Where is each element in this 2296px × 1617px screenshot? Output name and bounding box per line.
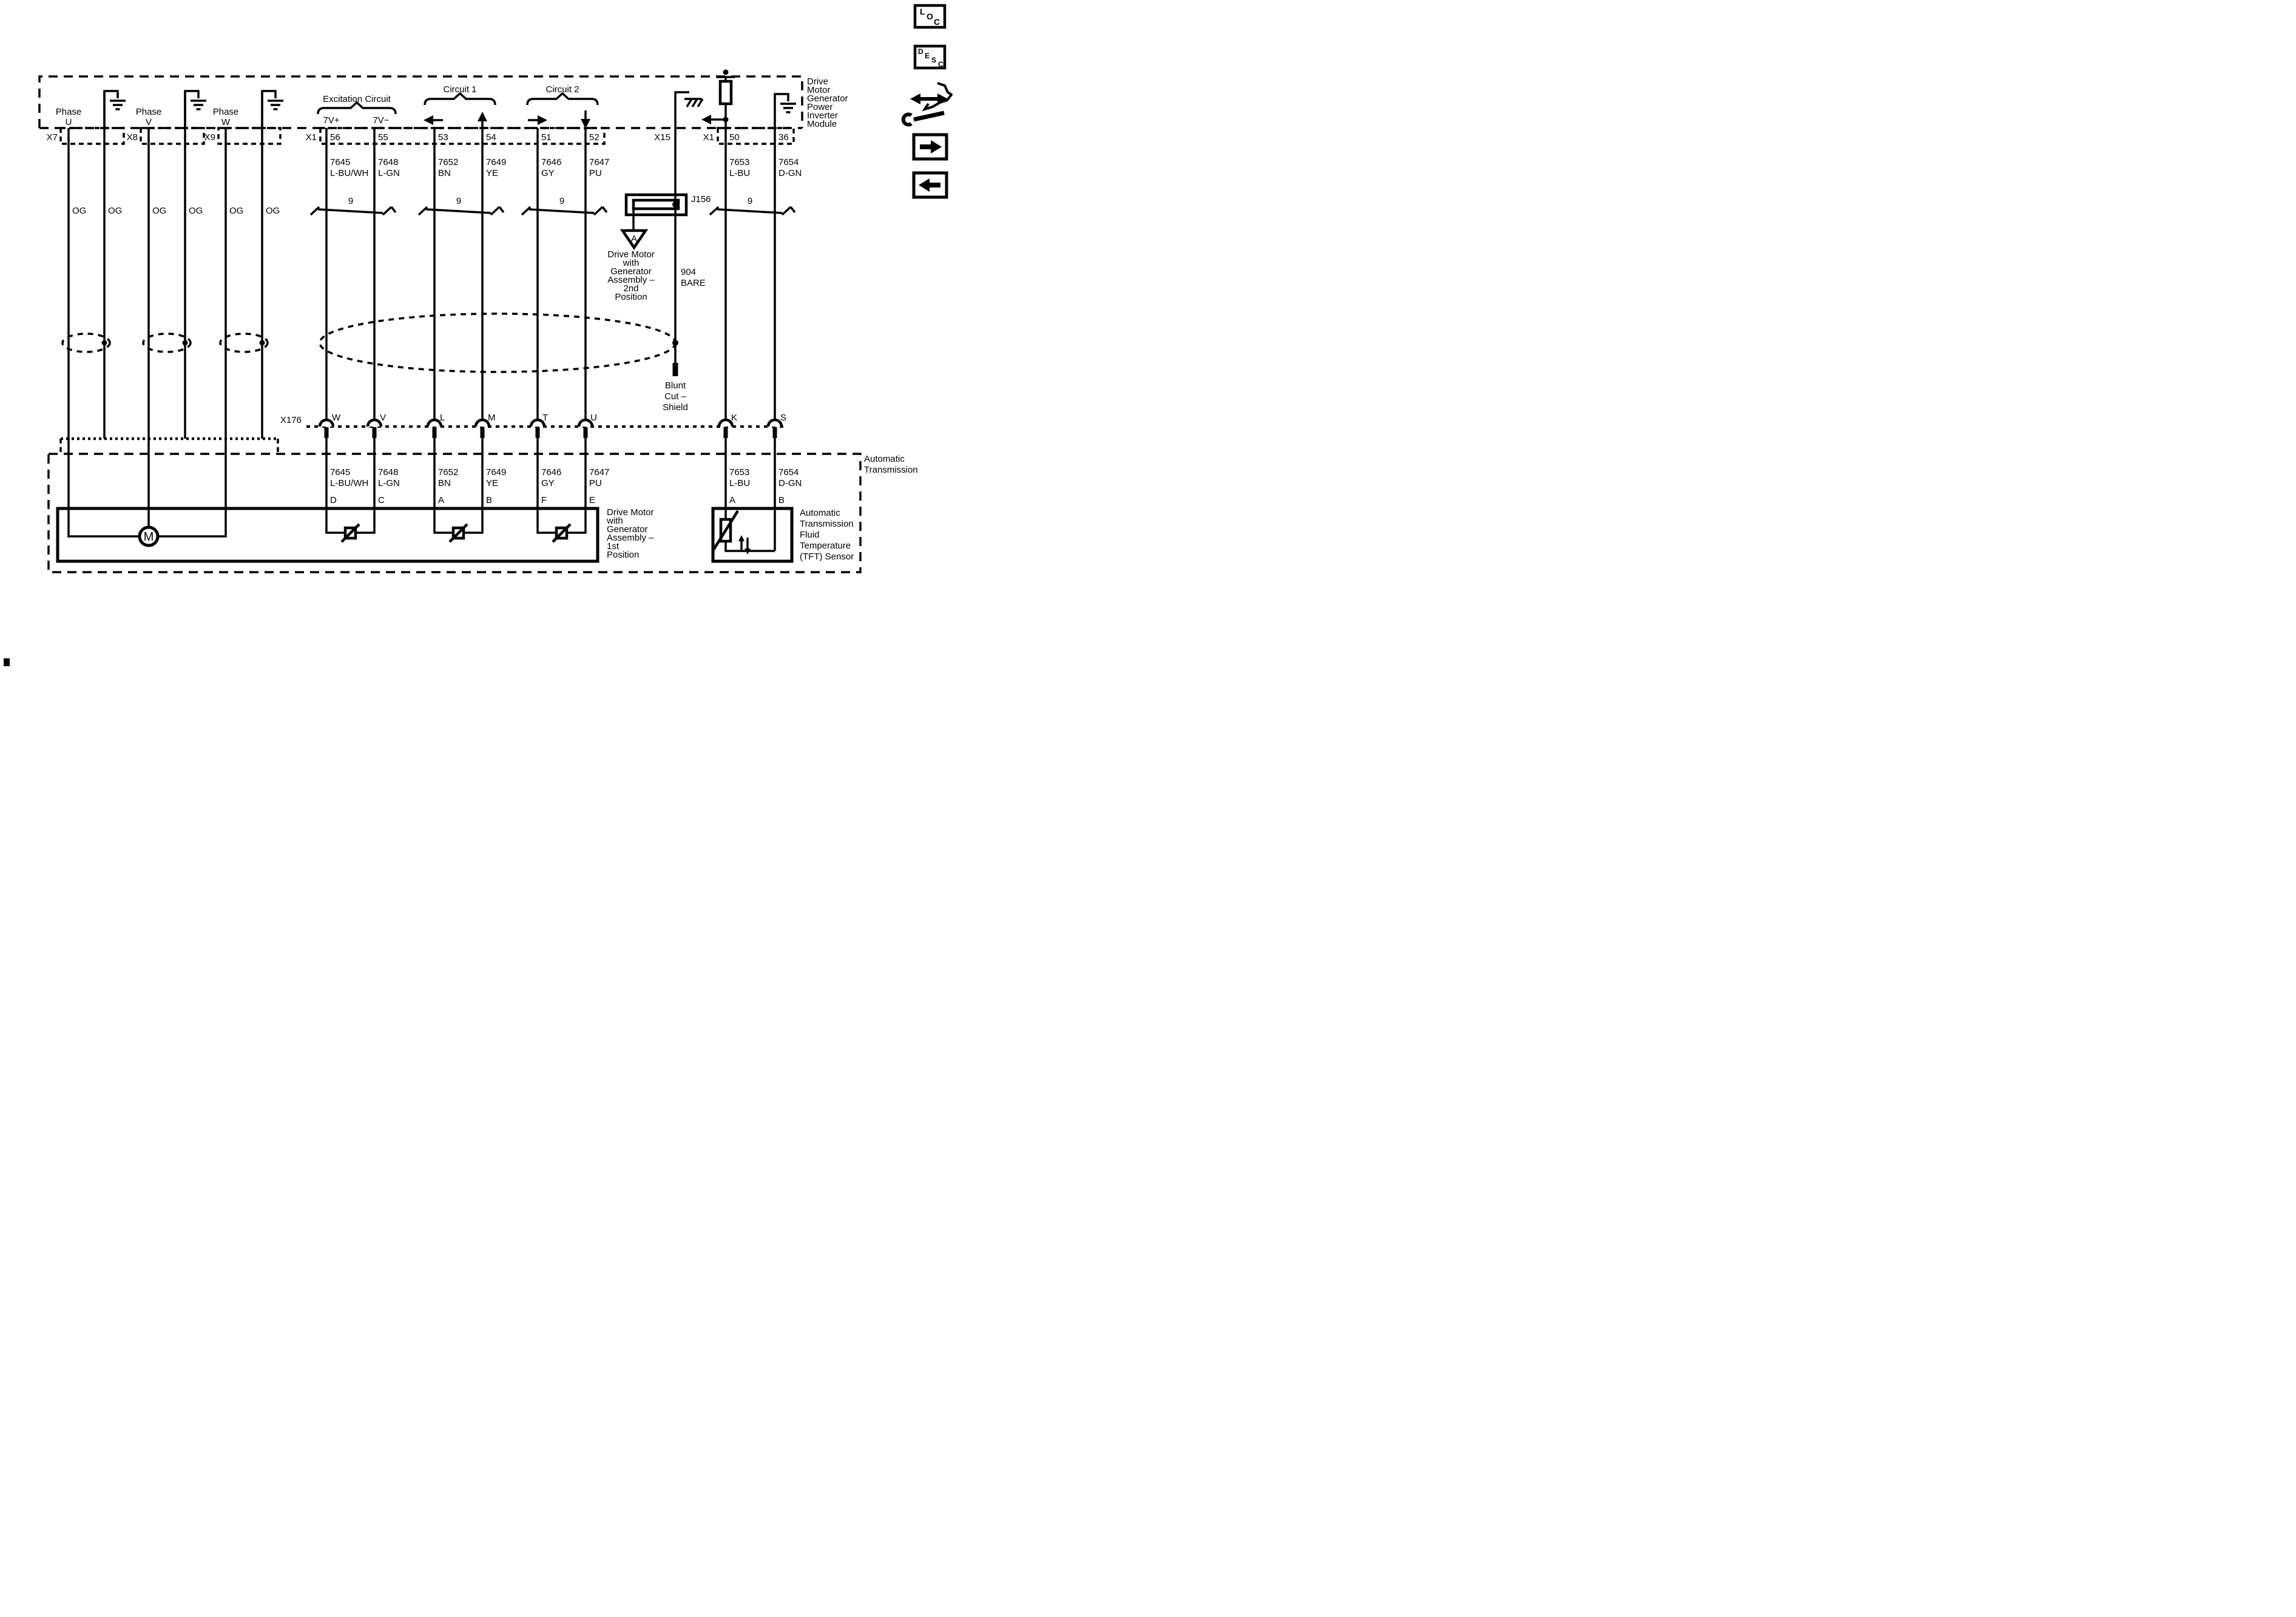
shield-junction-dot xyxy=(260,340,265,346)
transmission-label-line: Automatic xyxy=(864,454,905,464)
wire-circuit: 7649 xyxy=(486,467,506,478)
ground-icon xyxy=(104,91,126,128)
desc-button[interactable]: D E S C xyxy=(915,46,945,69)
loc-letter: L xyxy=(920,7,925,16)
shield-junction-dot xyxy=(102,340,107,346)
page-corner-mark xyxy=(4,658,10,666)
label-line: Shield xyxy=(663,402,688,413)
harness-count-marks: 9 9 9 9 xyxy=(311,196,795,215)
tft-internal-wire xyxy=(726,541,775,551)
connector-pin-stubs xyxy=(326,427,775,438)
phase-x176-connector xyxy=(61,439,278,454)
label-line: Blunt xyxy=(665,380,686,391)
wire-circuit: 7652 xyxy=(438,157,458,167)
label-line: Position xyxy=(615,292,647,302)
drive-motor-1st-box: M Drive Motor with Generator Assembly – … xyxy=(58,507,654,561)
pin-function-label: 7V− xyxy=(373,115,389,126)
wire-color: YE xyxy=(486,168,498,178)
pin-number: 51 xyxy=(541,132,552,143)
module-label-line: Module xyxy=(807,119,837,129)
wire-color: GY xyxy=(541,478,555,488)
connector-x1-label: X1 xyxy=(306,132,317,143)
connector-x1-label: X1 xyxy=(703,132,714,143)
connector-x8-box xyxy=(141,128,204,144)
drive-motor-1st-label: Drive Motor with Generator Assembly – 1s… xyxy=(606,507,654,560)
wire-color: L-GN xyxy=(378,478,400,488)
phase-letter: U xyxy=(66,117,72,127)
wire-color: BN xyxy=(438,478,451,488)
winding-symbol xyxy=(450,524,467,542)
wire-circuit: 7654 xyxy=(778,157,799,167)
brace xyxy=(527,93,598,105)
brace xyxy=(425,93,495,105)
harness-count: 9 xyxy=(348,196,353,206)
connector-x15-label: X15 xyxy=(654,132,670,143)
wire-color: L-BU/WH xyxy=(330,168,368,178)
wire-circuit: 7652 xyxy=(438,467,458,478)
x176-pin-letter: W xyxy=(332,413,341,423)
wire-7649 xyxy=(464,438,482,533)
loc-letter: O xyxy=(927,12,933,21)
terminal-letter: A xyxy=(438,495,444,505)
x176-pin-letter: V xyxy=(380,413,386,423)
desc-letter: D xyxy=(918,47,923,56)
pin-number: 55 xyxy=(378,132,388,143)
x176-pin-letter: K xyxy=(731,413,737,423)
connector-cavity-icon xyxy=(719,420,732,427)
phase-word: Phase xyxy=(136,107,162,117)
harness-count: 9 xyxy=(748,196,752,206)
next-button[interactable] xyxy=(914,135,947,159)
phase-letter: W xyxy=(221,117,231,127)
wire-color: D-GN xyxy=(778,478,802,488)
offpage-letter: A xyxy=(631,234,637,244)
connector-x1-top: X1 56 55 53 54 51 52 xyxy=(306,128,604,144)
wiring-diagram-page: Drive Motor Generator Power Inverter Mod… xyxy=(0,0,953,670)
shield-color: BARE xyxy=(681,278,706,288)
connector-x176: X176 W V L M T U K S xyxy=(280,413,786,438)
connector-x9-label: X9 xyxy=(204,132,215,143)
wire-color: GY xyxy=(541,168,555,178)
wrench-handle xyxy=(914,113,944,120)
transmission-label-line: Transmission xyxy=(864,465,918,475)
winding-symbol xyxy=(342,524,359,542)
wire-color: L-BU/WH xyxy=(330,478,368,488)
circuit1-section: Circuit 1 xyxy=(424,84,495,130)
connector-cavity-icon xyxy=(476,420,489,427)
wire-color: PU xyxy=(589,168,602,178)
signal-wires-top: 7645 L-BU/WH 7648 L-GN 7652 BN 7649 YE 7… xyxy=(326,128,802,420)
connector-cavity-icon xyxy=(768,420,782,427)
splice-label: J156 xyxy=(691,194,711,204)
wiring-diagram-canvas: Drive Motor Generator Power Inverter Mod… xyxy=(0,0,953,670)
phase-w-wire xyxy=(158,128,226,536)
phase-v-group: Phase V OG OG X8 xyxy=(127,91,206,527)
tft-sensor-box: Automatic Transmission Fluid Temperature… xyxy=(713,508,854,562)
wire-circuit: 7649 xyxy=(486,157,506,167)
connector-x176-label: X176 xyxy=(280,415,302,425)
shield-junction-dot xyxy=(183,340,188,346)
terminal-letter: B xyxy=(486,495,492,505)
offpage-connector-a: A xyxy=(623,231,646,248)
x176-pin-letter: S xyxy=(780,413,786,423)
wire-color: L-BU xyxy=(729,168,750,178)
connector-x1-right: X1 50 36 xyxy=(701,70,796,144)
wrench-icon xyxy=(903,115,911,125)
wire-circuit: 7646 xyxy=(541,157,561,167)
pin-number: 54 xyxy=(486,132,496,143)
shield-circuit-number: 904 xyxy=(681,267,696,277)
label-line: Fluid xyxy=(800,530,820,540)
splice-j156: J156 xyxy=(626,194,711,231)
desc-letter: S xyxy=(931,56,936,64)
connector-x7-label: X7 xyxy=(47,132,58,143)
label-line: (TFT) Sensor xyxy=(800,552,854,562)
motor-letter: M xyxy=(144,530,154,544)
wire-7647 xyxy=(567,438,586,533)
wire-circuit: 7653 xyxy=(729,157,749,167)
wire-color: L-GN xyxy=(378,168,400,178)
winding-symbol xyxy=(553,524,570,542)
wire-circuit: 7645 xyxy=(330,157,350,167)
wire-circuit: 7647 xyxy=(589,467,609,478)
wire-circuit: 7647 xyxy=(589,157,609,167)
pin-number: 53 xyxy=(438,132,448,143)
wire-color: BN xyxy=(438,168,451,178)
wire-color-label: OG xyxy=(108,206,122,216)
drive-motor-2nd-label: Drive Motor with Generator Assembly – 2n… xyxy=(607,249,655,302)
desc-letter: E xyxy=(925,52,930,60)
phase-word: Phase xyxy=(213,107,239,117)
terminal-letter: A xyxy=(729,495,735,505)
connector-x9-box xyxy=(218,128,280,144)
connector-cavity-icon xyxy=(428,420,441,427)
wire-circuit: 7648 xyxy=(378,157,398,167)
tft-label: Automatic Transmission Fluid Temperature… xyxy=(800,508,854,562)
ground-icon xyxy=(775,94,796,128)
terminal-letter: C xyxy=(378,495,385,505)
label-line: Cut – xyxy=(664,391,687,402)
x176-pin-letter: T xyxy=(542,413,548,423)
desc-letter: C xyxy=(938,60,944,69)
connector-x7-box xyxy=(61,128,124,144)
toolbar: L O C D E S C xyxy=(903,5,951,197)
blunt-cut-label: Blunt Cut – Shield xyxy=(663,380,688,413)
connector-cavity-icon xyxy=(368,420,381,427)
wire-color: L-BU xyxy=(729,478,750,488)
pin-function-label: 7V+ xyxy=(323,115,339,126)
wire-circuit: 7645 xyxy=(330,467,350,478)
phase-letter: V xyxy=(146,117,152,127)
wire-circuit: 7648 xyxy=(378,467,398,478)
phase-u-group: Phase U OG OG X7 xyxy=(47,91,140,536)
excitation-circuit-section: Excitation Circuit 7V+ 7V− xyxy=(318,94,396,126)
service-navigate-icon[interactable] xyxy=(903,83,951,125)
pin-number: 56 xyxy=(330,132,340,143)
wire-color: D-GN xyxy=(778,168,802,178)
wire-color-label: OG xyxy=(189,206,203,216)
thermistor-icon xyxy=(714,511,751,555)
wire-circuit: 7646 xyxy=(541,467,561,478)
shield-drain-group: X15 J156 A Drive Motor with Generator As… xyxy=(607,92,711,413)
terminal-letter: E xyxy=(589,495,595,505)
harness-count: 9 xyxy=(456,196,461,206)
ground-icon xyxy=(262,91,283,128)
connector-cavity-icon xyxy=(320,420,333,427)
shield-junction-dot xyxy=(672,340,678,346)
x176-pin-letter: M xyxy=(488,413,496,423)
back-button[interactable] xyxy=(914,173,947,197)
harness-count: 9 xyxy=(559,196,564,206)
wire-circuit: 7653 xyxy=(729,467,749,478)
phase-w-group: Phase W OG OG X9 xyxy=(158,91,283,536)
pin-number: 50 xyxy=(729,132,740,143)
pin-number: 36 xyxy=(778,132,789,143)
label-line: Temperature xyxy=(800,541,851,551)
circuit2-section: Circuit 2 xyxy=(527,84,598,129)
loc-letter: C xyxy=(934,17,940,27)
wire-color: PU xyxy=(589,478,602,488)
terminal-letter: F xyxy=(541,495,547,505)
label-line: Position xyxy=(607,550,639,560)
wire-color-label: OG xyxy=(266,206,280,216)
wire-circuit: 7654 xyxy=(778,467,799,478)
pin-number: 52 xyxy=(589,132,599,143)
phase-word: Phase xyxy=(56,107,82,117)
wire-color-label: OG xyxy=(152,206,166,216)
terminal-letter: D xyxy=(330,495,337,505)
chassis-ground-icon xyxy=(675,92,703,128)
terminal-letter: B xyxy=(778,495,785,505)
pullup-resistor-icon xyxy=(701,70,735,129)
x176-pin-letter: U xyxy=(590,413,597,423)
blunt-cut-terminal xyxy=(673,363,678,376)
x176-pin-letter: L xyxy=(440,413,445,423)
label-line: Automatic xyxy=(800,508,840,518)
wire-color-label: OG xyxy=(229,206,243,216)
wire-color: YE xyxy=(486,478,498,488)
wire-color-label: OG xyxy=(72,206,86,216)
label-line: Transmission xyxy=(800,519,854,529)
loc-button[interactable]: L O C xyxy=(915,5,945,27)
ground-icon xyxy=(185,91,206,128)
connector-x8-label: X8 xyxy=(127,132,138,143)
